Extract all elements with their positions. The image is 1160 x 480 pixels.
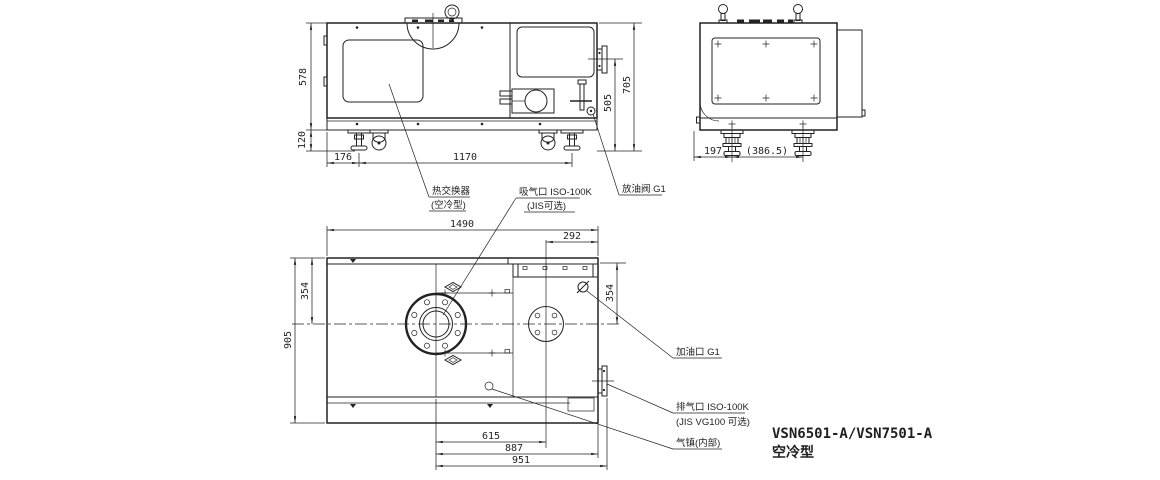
eyebolt-icon (445, 5, 459, 19)
motor-assembly (500, 89, 554, 113)
oil-drain-label: 放油阀 G1 (622, 183, 666, 195)
heat-exchanger-label-line1: 热交换器 (432, 185, 471, 197)
caster-right (539, 130, 557, 150)
caster-left (370, 130, 388, 150)
end-door-panel (712, 38, 820, 104)
end-view: 197 (386.5) (694, 5, 865, 163)
heat-exchanger-window (343, 40, 423, 102)
dim-plan-left-top-to-center: 354 (300, 282, 311, 300)
vacuum-pump-dimension-drawing: 578 120 176 1170 505 705 热交换器 (空冷型) 吸气口 (0, 0, 1160, 480)
dim-plan-flange-to-exhaust-face: 951 (512, 455, 530, 466)
side-view-dimensions: 578 120 176 1170 505 705 (297, 23, 642, 167)
eyebolt-right-icon (794, 5, 803, 24)
end-view-dimensions: 197 (386.5) (694, 131, 803, 161)
dim-plan-overall-width: 905 (283, 331, 294, 349)
dim-side-exhaust-height: 505 (603, 94, 614, 112)
leveling-foot-right (561, 130, 583, 150)
exhaust-flange-side (588, 46, 623, 73)
exhaust-label-line1: 排气口 ISO-100K (676, 401, 750, 413)
side-view: 578 120 176 1170 505 705 热交换器 (空冷型) 吸气口 (297, 5, 666, 315)
intake-dome (405, 5, 462, 49)
dim-end-foot-offset: 197 (704, 146, 722, 157)
dim-end-foot-span: (386.5) (746, 146, 788, 157)
dim-plan-overall-length: 1490 (450, 219, 474, 230)
oil-drain-valve (570, 80, 595, 115)
oil-fill-label: 加油口 G1 (676, 346, 720, 358)
model-number: VSN6501-A/VSN7501-A (772, 426, 933, 442)
dim-side-body-height: 578 (298, 68, 309, 86)
heat-exchanger-label-line2: (空冷型) (431, 199, 466, 211)
model-variant: 空冷型 (772, 444, 814, 461)
dim-plan-flange-to-body-end: 887 (505, 443, 523, 454)
exhaust-label-line2: (JIS VG100 可选) (676, 416, 750, 428)
intake-label-line2: (JIS可选) (527, 200, 566, 212)
plan-view-dimensions: 1490 292 354 905 354 615 887 951 (283, 219, 626, 470)
base-frame (327, 118, 597, 130)
gas-ballast-marker (485, 382, 493, 390)
intake-label-line1: 吸气口 ISO-100K (519, 186, 593, 198)
leveling-foot-left (348, 130, 370, 150)
dim-side-base-height: 120 (297, 131, 308, 149)
lifting-lug-lower (445, 356, 461, 365)
title-block: VSN6501-A/VSN7501-A 空冷型 (772, 426, 933, 461)
technical-drawing-canvas: 578 120 176 1170 505 705 热交换器 (空冷型) 吸气口 (0, 0, 1160, 480)
dim-plan-right-top-to-center: 354 (605, 284, 616, 302)
plan-body-outline (327, 258, 598, 423)
pump-housing-panel (517, 27, 594, 77)
eyebolt-left-icon (719, 5, 728, 24)
end-body-outline (700, 23, 837, 130)
side-body-outline (327, 23, 597, 118)
plan-view: 1490 292 354 905 354 615 887 951 加油口 G1 (283, 219, 750, 470)
dim-plan-flange-to-coupling: 615 (482, 431, 500, 442)
coupling-circle (529, 240, 564, 448)
dim-side-overall-height: 705 (622, 76, 633, 94)
gas-ballast-label: 气镇(内部) (676, 437, 720, 449)
exhaust-flange-top (592, 366, 614, 396)
radiator-strip (513, 264, 598, 277)
dim-plan-right-offset: 292 (563, 231, 581, 242)
dim-side-foot-span: 1170 (453, 152, 477, 163)
dim-side-foot-offset: 176 (334, 152, 352, 163)
